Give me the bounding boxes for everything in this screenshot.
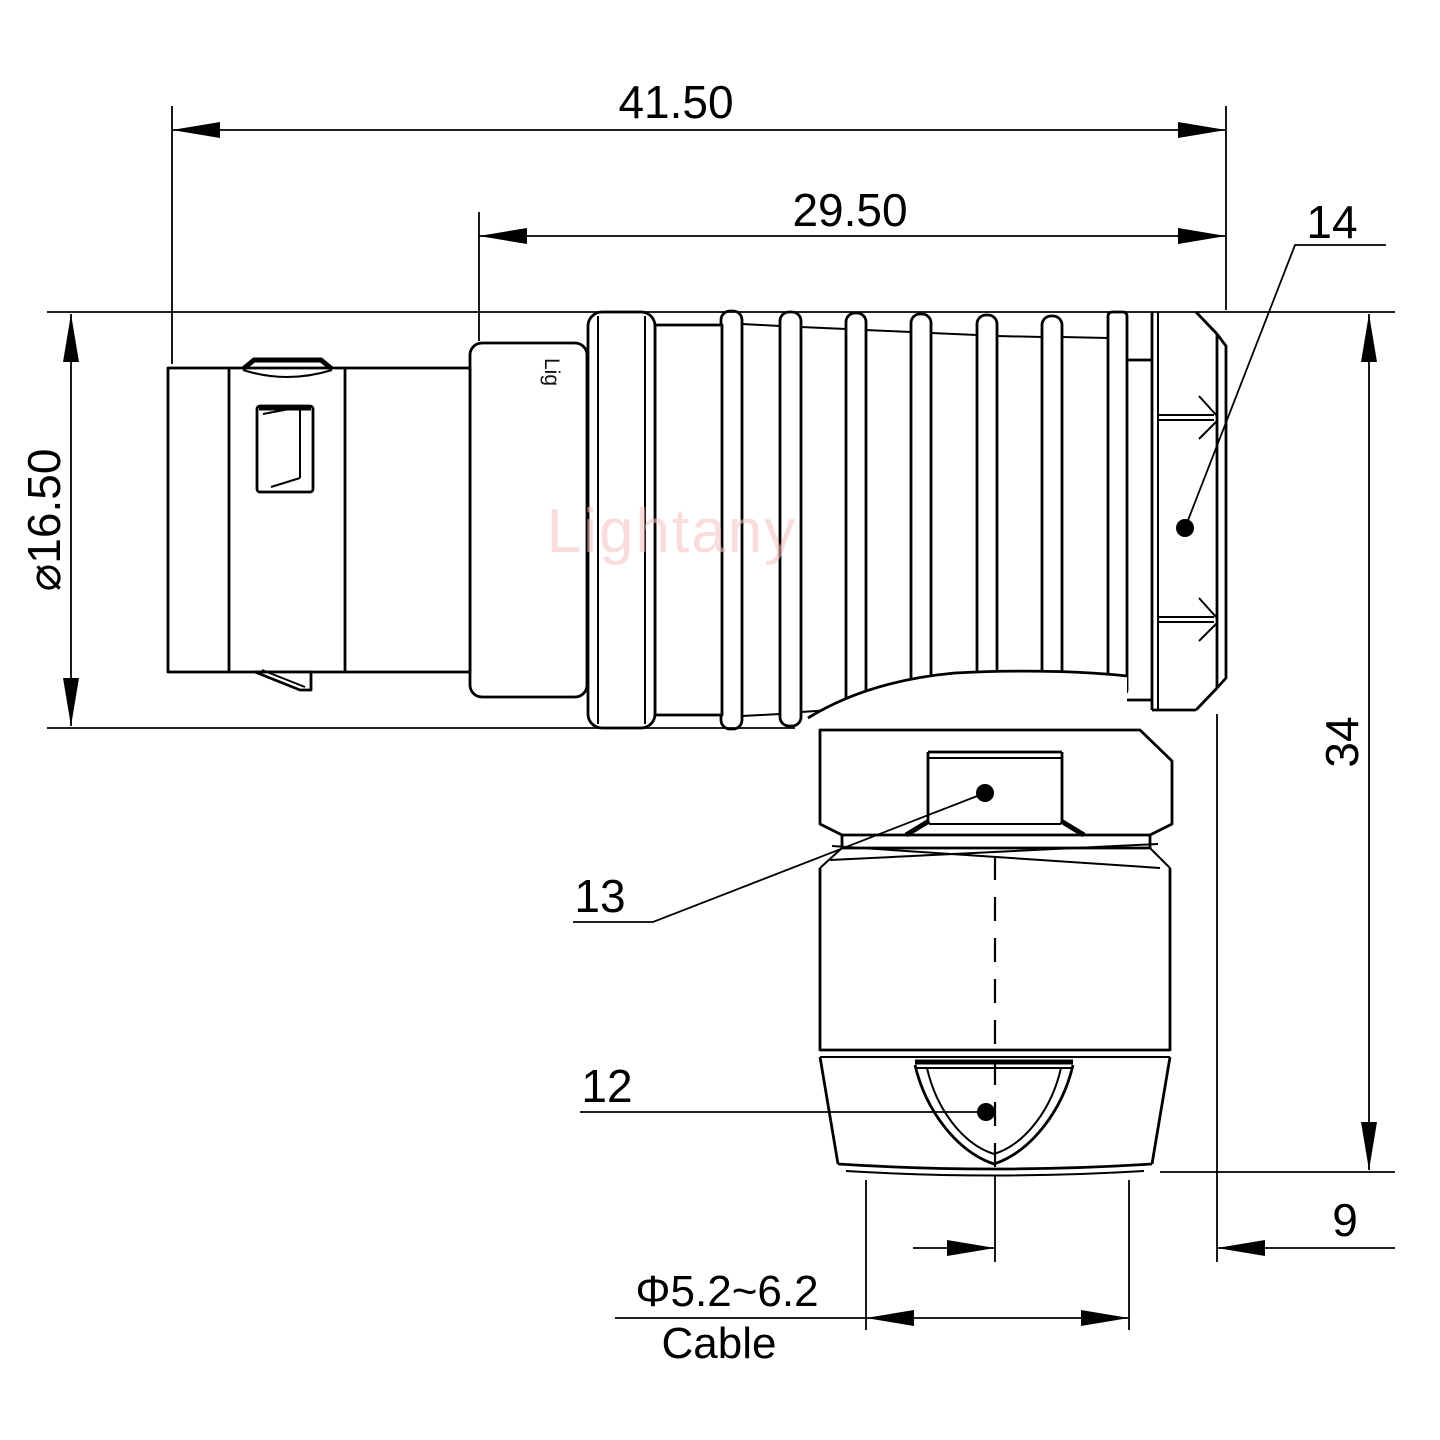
cable-label-text: Cable (662, 1319, 777, 1368)
boot-collar (1108, 312, 1127, 694)
dim-overall-height-text: 34 (1316, 716, 1368, 767)
dim-overall-height: 34 (1160, 314, 1395, 1172)
watermark-text: Lightany (547, 497, 797, 566)
hex-back-nut (1127, 312, 1226, 710)
technical-drawing-canvas: Lig (0, 0, 1440, 1440)
front-shell (168, 360, 470, 690)
label-back-nut-text: 14 (1306, 196, 1357, 248)
label-coupling-hex-text: 13 (574, 870, 625, 922)
arrowhead (479, 228, 527, 244)
boot-rib (911, 314, 931, 714)
dim-overall-length: 41.50 (172, 76, 1226, 364)
dim-cable-diameter-text: Φ5.2~6.2 (635, 1267, 818, 1316)
connector-part-views: Lig (168, 311, 1226, 1176)
dim-cable-diameter: Φ5.2~6.2 Cable (615, 1180, 1129, 1368)
dimension-annotations: 41.50 29.50 ⌀16.50 34 (18, 76, 1395, 1368)
shell-marking-text: Lig (540, 358, 563, 386)
boot-rib (1042, 316, 1062, 696)
arrowhead (1178, 122, 1226, 138)
arrowhead (1081, 1310, 1129, 1326)
dim-shell-diameter-text: ⌀16.50 (18, 449, 70, 592)
boot-rib (846, 313, 866, 721)
elbow-shoulder (820, 730, 1172, 835)
label-back-nut: 14 (1185, 196, 1386, 528)
dim-overall-length-text: 41.50 (618, 76, 733, 128)
arrowhead (1217, 1240, 1265, 1256)
boot-rib (977, 315, 997, 705)
arrowhead (866, 1310, 914, 1326)
arrowhead (947, 1240, 995, 1256)
bayonet-tab (255, 670, 311, 690)
arrowhead (1361, 1122, 1377, 1170)
arrowhead (63, 314, 79, 362)
dim-barrel-length-text: 29.50 (792, 184, 907, 236)
arrowhead (172, 122, 220, 138)
arrowhead (1178, 228, 1226, 244)
label-strain-relief-text: 12 (581, 1060, 632, 1112)
dim-axis-offset-text: 9 (1332, 1194, 1358, 1246)
technical-drawing-page: Lig (0, 0, 1440, 1440)
arrowhead (63, 678, 79, 726)
arrowhead (1361, 314, 1377, 362)
dim-shell-diameter: ⌀16.50 (18, 314, 79, 726)
